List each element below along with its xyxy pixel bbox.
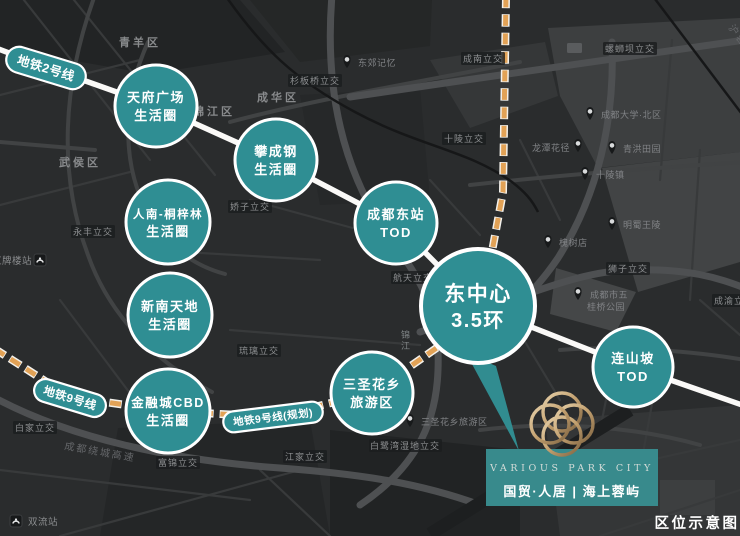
- node-panchenggang: 攀成钢 生活圈: [235, 119, 317, 201]
- node-xinnantiandi: 新南天地 生活圈: [128, 273, 212, 357]
- svg-text:成都市五: 成都市五: [590, 289, 628, 300]
- svg-text:明蜀王陵: 明蜀王陵: [623, 220, 661, 230]
- svg-text:生活圈: 生活圈: [146, 224, 190, 239]
- interchange-shanbanqiao: 杉板桥立交: [288, 74, 342, 87]
- svg-text:攀成钢: 攀成钢: [253, 144, 298, 159]
- svg-text:人南-桐梓林: 人南-桐梓林: [133, 207, 203, 221]
- node-lianshanpo: 连山坡 TOD: [593, 327, 673, 407]
- svg-text:东郊记忆: 东郊记忆: [358, 57, 396, 68]
- svg-text:白家立交: 白家立交: [15, 422, 55, 433]
- svg-text:螺蛳坝立交: 螺蛳坝立交: [605, 43, 655, 54]
- svg-text:龙潭花径: 龙潭花径: [532, 142, 570, 153]
- svg-text:十陵立交: 十陵立交: [444, 133, 484, 144]
- svg-text:江家立交: 江家立交: [285, 451, 325, 462]
- svg-text:桂桥公园: 桂桥公园: [587, 301, 625, 312]
- svg-text:琉璃立交: 琉璃立交: [239, 345, 279, 356]
- svg-text:东中心: 东中心: [444, 282, 512, 306]
- interchange-shiling: 十陵立交: [442, 132, 486, 145]
- svg-text:生活圈: 生活圈: [146, 413, 190, 428]
- svg-text:成都东站: 成都东站: [367, 207, 425, 222]
- station-hongpailou: 红牌楼站: [0, 254, 46, 267]
- node-tianfu-square: 天府广场 生活圈: [115, 65, 197, 147]
- svg-text:成都大学·北区: 成都大学·北区: [601, 109, 662, 120]
- node-jinrongcheng-cbd: 金融城CBD 生活圈: [126, 369, 210, 453]
- map-canvas: 青羊区 成华区 锦江区 武侯区 锦江 永丰立交 杉板桥立交 成南立交 十陵立交 …: [0, 0, 740, 536]
- svg-text:永丰立交: 永丰立交: [73, 226, 113, 237]
- brand-name-cn: 国贸·人居 | 海上蓉屿: [503, 484, 640, 499]
- svg-text:青洪田园: 青洪田园: [623, 143, 661, 154]
- svg-text:连山坡: 连山坡: [611, 351, 655, 366]
- district-jinjiang: 锦江区: [193, 104, 235, 118]
- interchange-shizi: 狮子立交: [606, 262, 650, 275]
- interchange-chengnan: 成南立交: [461, 52, 505, 65]
- interchange-jiangjia: 江家立交: [283, 450, 327, 463]
- node-sanshenghuaxiang: 三圣花乡 旅游区: [331, 352, 413, 434]
- district-qingyang: 青羊区: [119, 35, 161, 49]
- svg-text:十陵镇: 十陵镇: [596, 169, 625, 180]
- svg-text:红牌楼站: 红牌楼站: [0, 255, 32, 267]
- district-wuhou: 武侯区: [59, 155, 101, 169]
- svg-text:娇子立交: 娇子立交: [230, 201, 270, 212]
- metro-station-icon: [34, 254, 46, 266]
- svg-text:天府广场: 天府广场: [127, 90, 185, 105]
- svg-text:TOD: TOD: [380, 225, 412, 240]
- svg-text:3.5环: 3.5环: [451, 310, 505, 332]
- svg-text:TOD: TOD: [617, 369, 649, 384]
- svg-text:金融城CBD: 金融城CBD: [130, 395, 205, 410]
- svg-text:生活圈: 生活圈: [254, 162, 298, 177]
- svg-text:三圣花乡: 三圣花乡: [343, 377, 401, 392]
- interchange-bailuwan: 白鹭湾湿地立交: [369, 439, 442, 452]
- location-map: 青羊区 成华区 锦江区 武侯区 锦江 永丰立交 杉板桥立交 成南立交 十陵立交 …: [0, 0, 740, 536]
- node-rennan-tongzilin: 人南-桐梓林 生活圈: [126, 180, 210, 264]
- river-label: 锦江: [400, 329, 410, 352]
- interchange-liuli: 琉璃立交: [237, 344, 281, 357]
- station-shuangliu: 双流站: [10, 515, 58, 528]
- node-dongzhongxin-main: 东中心 3.5环: [421, 249, 535, 363]
- map-caption: 区位示意图: [655, 514, 740, 532]
- svg-text:成渝立交: 成渝立交: [714, 295, 740, 306]
- svg-text:杉板桥立交: 杉板桥立交: [290, 75, 340, 86]
- svg-text:双流站: 双流站: [28, 516, 58, 528]
- svg-text:白鹭湾湿地立交: 白鹭湾湿地立交: [370, 440, 440, 451]
- svg-text:富锦立交: 富锦立交: [158, 457, 198, 468]
- svg-text:旅游区: 旅游区: [350, 395, 394, 410]
- svg-text:新南天地: 新南天地: [141, 299, 199, 314]
- svg-text:成南立交: 成南立交: [463, 53, 503, 64]
- interchange-jiaozi: 娇子立交: [228, 200, 272, 213]
- svg-text:生活圈: 生活圈: [134, 108, 178, 123]
- interchange-baijia: 白家立交: [13, 421, 57, 434]
- district-chenghua: 成华区: [257, 90, 299, 104]
- svg-text:生活圈: 生活圈: [148, 317, 192, 332]
- node-chengdu-east-station: 成都东站 TOD: [355, 182, 437, 264]
- interchange-fujin: 富锦立交: [156, 456, 200, 469]
- svg-text:三圣花乡旅游区: 三圣花乡旅游区: [421, 416, 488, 427]
- svg-text:狮子立交: 狮子立交: [608, 263, 648, 274]
- interchange-yongfeng: 永丰立交: [71, 225, 115, 238]
- metro-station-icon: [10, 515, 22, 527]
- svg-text:槐树店: 槐树店: [559, 237, 588, 248]
- brand-name-en: VARIOUS PARK CITY: [489, 463, 654, 474]
- interchange-chengyu: 成渝立交: [712, 294, 740, 307]
